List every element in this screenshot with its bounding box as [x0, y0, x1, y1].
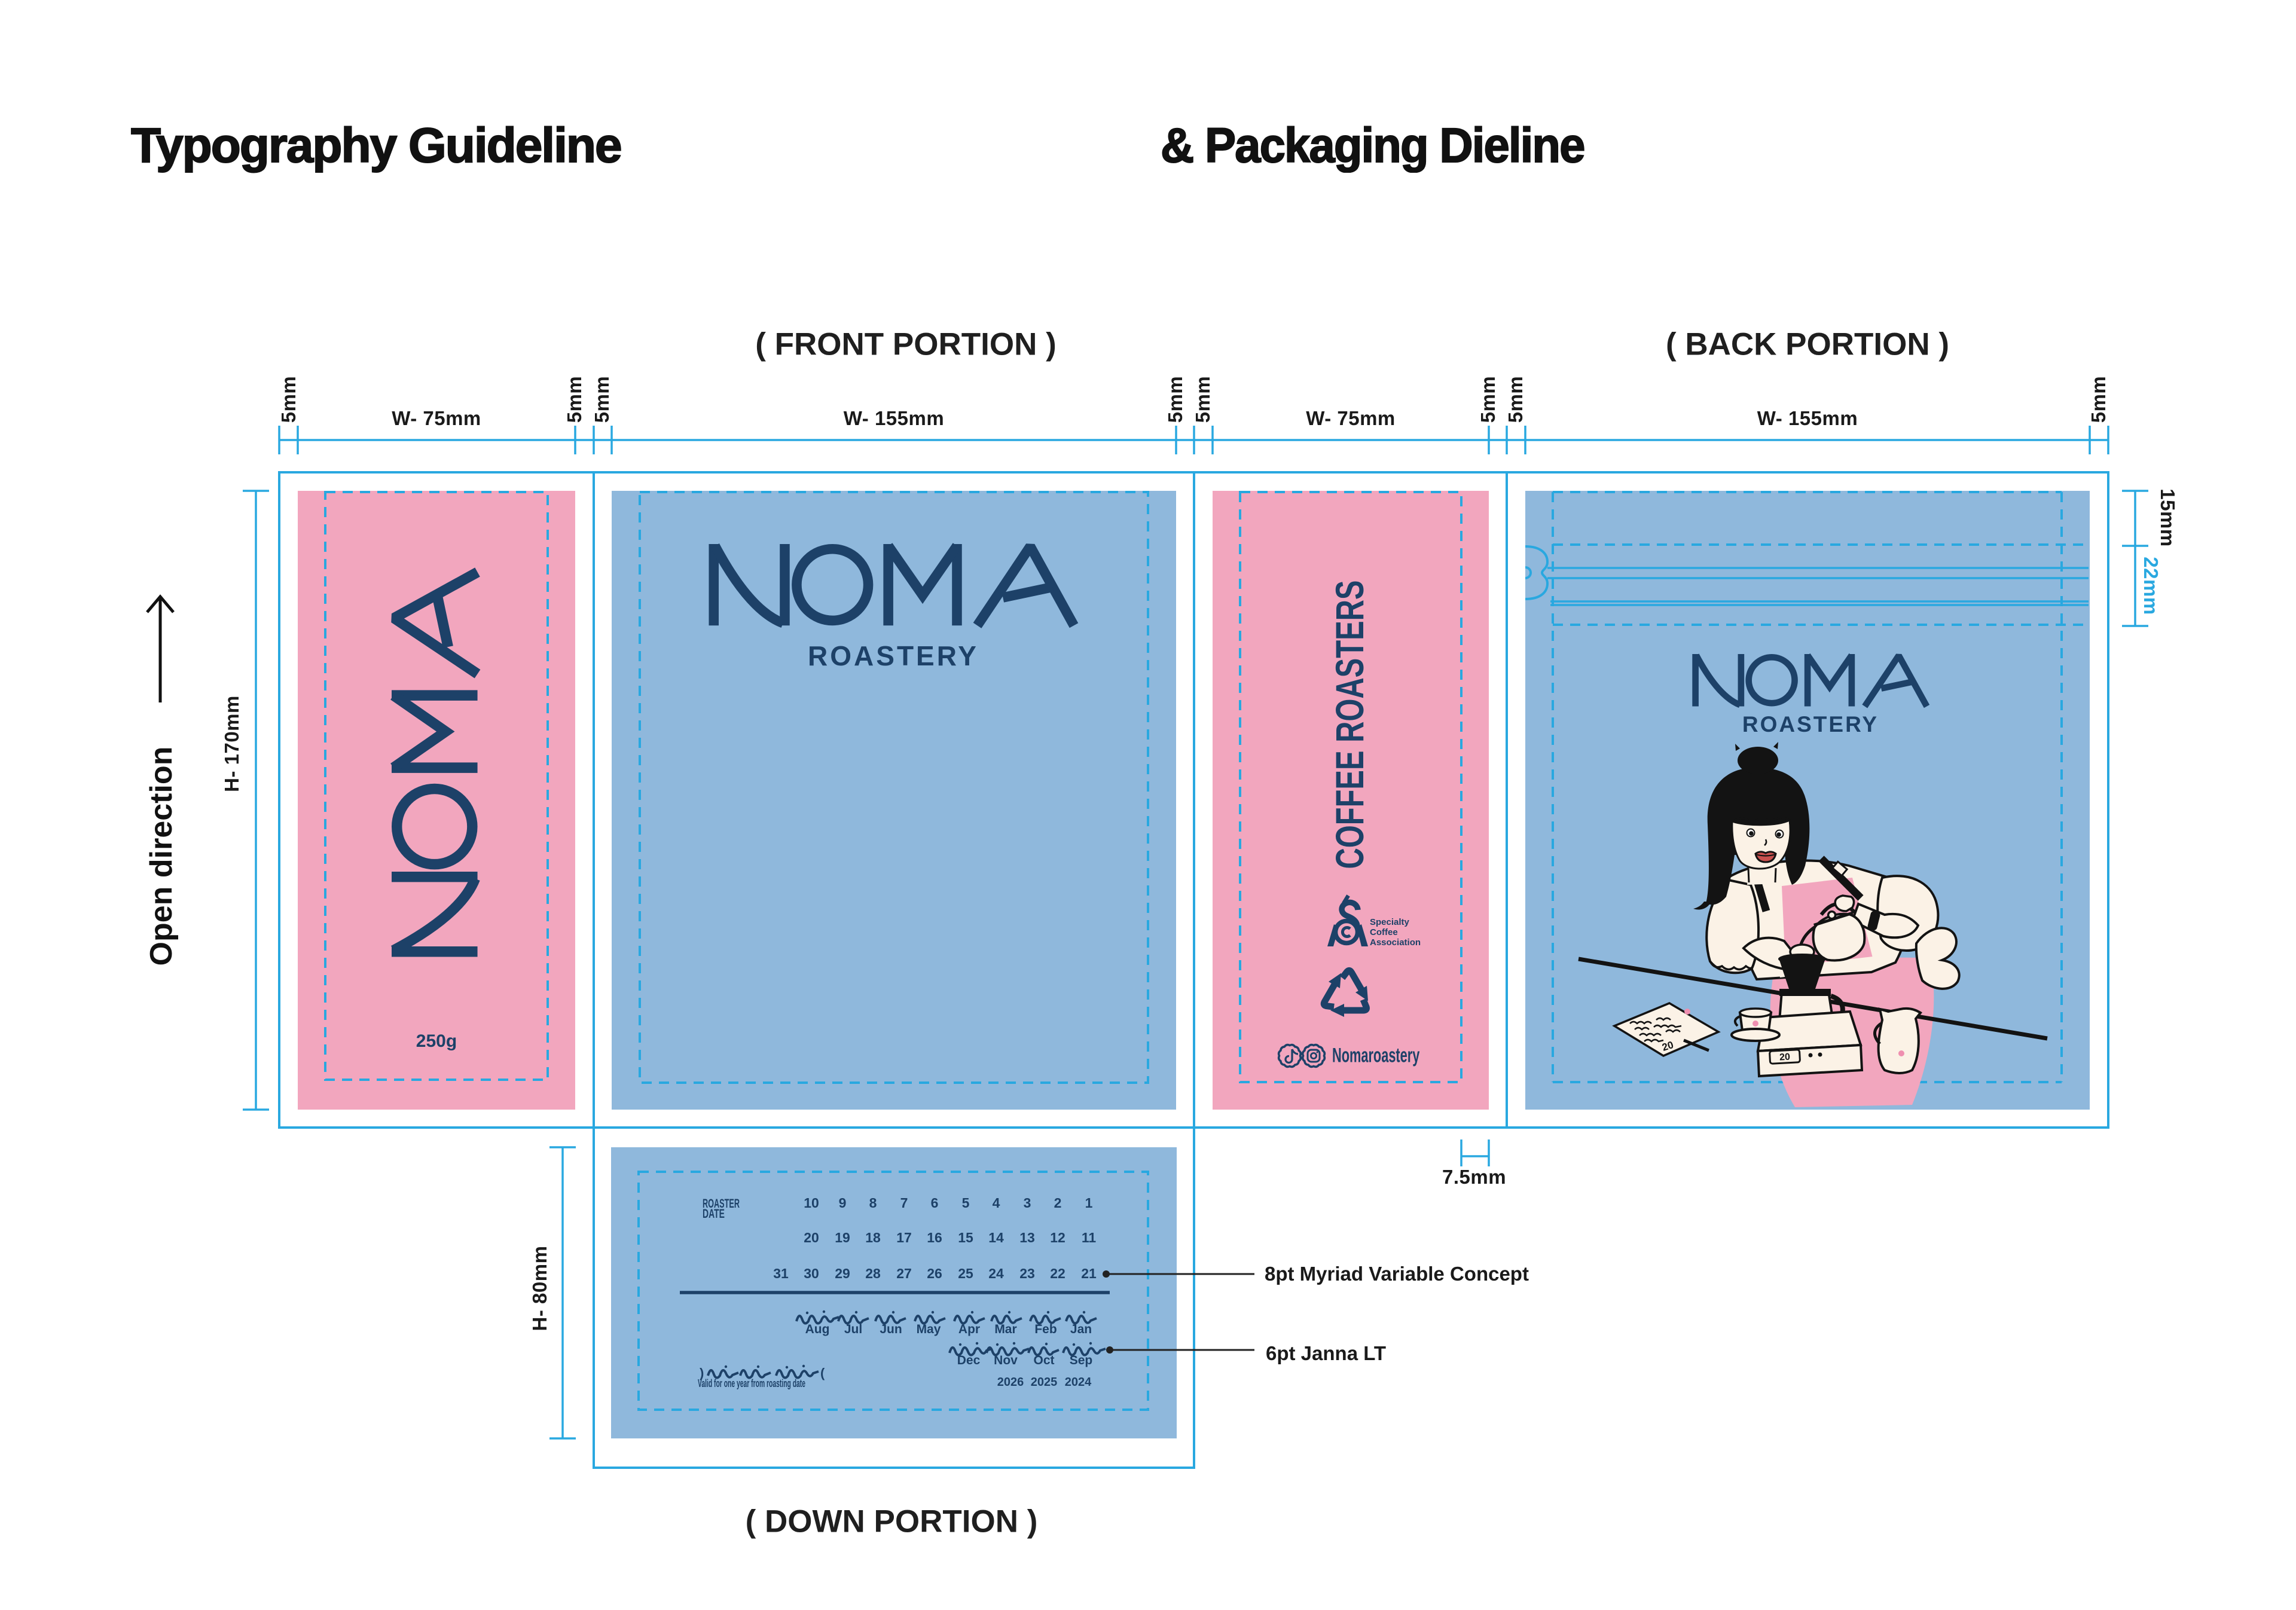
svg-text:Jun: Jun	[880, 1322, 902, 1336]
svg-text:31: 31	[773, 1266, 789, 1281]
svg-text:26: 26	[927, 1266, 942, 1281]
svg-text:Apr: Apr	[958, 1322, 980, 1336]
svg-text:2026: 2026	[997, 1376, 1024, 1389]
svg-text:16: 16	[927, 1230, 942, 1245]
svg-text:2025: 2025	[1031, 1376, 1058, 1389]
svg-text:3: 3	[1024, 1195, 1031, 1211]
svg-text:22: 22	[1050, 1266, 1065, 1281]
svg-text:25: 25	[958, 1266, 973, 1281]
svg-text:Jan: Jan	[1070, 1322, 1092, 1336]
svg-text:7: 7	[900, 1195, 908, 1211]
svg-text:28: 28	[865, 1266, 881, 1281]
svg-text:27: 27	[896, 1266, 912, 1281]
svg-text:Mar: Mar	[994, 1322, 1016, 1336]
svg-text:6: 6	[931, 1195, 939, 1211]
svg-text:Feb: Feb	[1034, 1322, 1057, 1336]
svg-text:Association: Association	[1370, 937, 1421, 948]
svg-text:14: 14	[988, 1230, 1004, 1245]
svg-text:Coffee: Coffee	[1370, 927, 1398, 937]
svg-text:24: 24	[988, 1266, 1004, 1281]
svg-text:Specialty: Specialty	[1370, 917, 1410, 927]
svg-text:29: 29	[835, 1266, 850, 1281]
svg-text:18: 18	[865, 1230, 881, 1245]
svg-text:Aug: Aug	[805, 1322, 830, 1336]
svg-text:Valid for one year from roasti: Valid for one year from roasting date	[698, 1377, 805, 1389]
svg-text:19: 19	[835, 1230, 850, 1245]
svg-text:DATE: DATE	[703, 1207, 725, 1221]
svg-text:10: 10	[804, 1195, 819, 1211]
svg-text:11: 11	[1082, 1230, 1097, 1245]
svg-text:8: 8	[869, 1195, 877, 1211]
svg-text:20: 20	[804, 1230, 819, 1245]
svg-text:17: 17	[896, 1230, 912, 1245]
svg-text:4: 4	[993, 1195, 1000, 1211]
svg-text:21: 21	[1081, 1266, 1097, 1281]
svg-text:23: 23	[1019, 1266, 1035, 1281]
svg-text:Dec: Dec	[957, 1354, 981, 1367]
svg-text:12: 12	[1050, 1230, 1065, 1245]
svg-text:9: 9	[839, 1195, 847, 1211]
svg-text:2024: 2024	[1065, 1376, 1092, 1389]
svg-text:15: 15	[958, 1230, 973, 1245]
svg-text:(: (	[820, 1365, 825, 1380]
svg-text:5: 5	[962, 1195, 970, 1211]
svg-text:May: May	[917, 1322, 941, 1336]
svg-text:20: 20	[1779, 1052, 1791, 1063]
svg-text:30: 30	[804, 1266, 819, 1281]
svg-text:13: 13	[1019, 1230, 1035, 1245]
svg-text:1: 1	[1085, 1195, 1093, 1211]
svg-text:2: 2	[1054, 1195, 1062, 1211]
